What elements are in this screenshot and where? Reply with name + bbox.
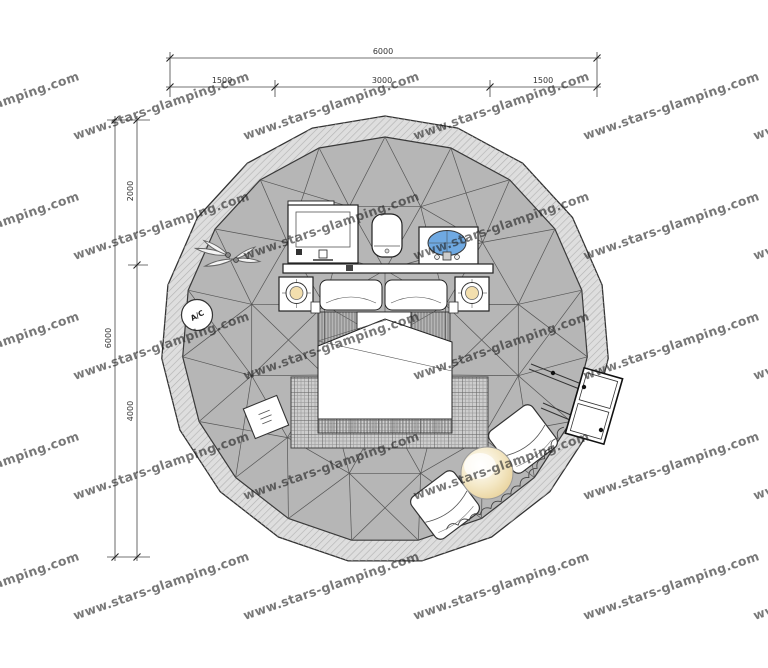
watermark-text: www.stars-glamping.com (0, 188, 81, 263)
watermark-text: www.stars-glamping.com (0, 428, 81, 503)
bed-footboard (318, 419, 452, 433)
nightstand-left (279, 277, 313, 311)
pillow-right (385, 280, 447, 310)
watermark-text: www.stars-glamping.com (581, 308, 761, 383)
watermark-text: www.stars-glamping.com (241, 548, 421, 623)
watermark-text: www.stars-glamping.com (411, 548, 591, 623)
water-heater (372, 214, 402, 257)
double-bed (311, 280, 458, 433)
door-hinge (582, 385, 586, 389)
nightstand-right (455, 277, 489, 311)
dim-left-total: 6000 (104, 328, 113, 348)
dim-left-seg-1: 2000 (126, 181, 135, 201)
watermark-text: www.stars-glamping.com (581, 428, 761, 503)
lamp-right (466, 287, 479, 300)
watermark-text: www.stars-glamping.com (71, 548, 251, 623)
headboard-shelf (283, 264, 493, 273)
dim-left-seg-2: 4000 (126, 401, 135, 421)
watermark-text: www.stars-glamping.com (0, 548, 81, 623)
watermark-text: www.stars-glamping.com (411, 68, 591, 143)
floorplan-canvas: 6000 1500 3000 1500 6000 2000 4000 (0, 0, 768, 668)
watermark-text: www.stars-glamping.com (71, 68, 251, 143)
watermark-text: www.stars-glamping.com (0, 308, 81, 383)
faucet (443, 252, 451, 260)
lamp-left (290, 287, 303, 300)
dim-top-total: 6000 (373, 47, 393, 56)
watermark-text: www.stars-glamping.com (581, 548, 761, 623)
floorplan-svg: 6000 1500 3000 1500 6000 2000 4000 (0, 0, 768, 668)
watermark-text: www.stars-glamping.com (581, 188, 761, 263)
watermark-text: www.stars-glamping.com (581, 68, 761, 143)
watermark-text: www.stars-glamping.com (0, 68, 81, 143)
pillow-left (320, 280, 382, 310)
